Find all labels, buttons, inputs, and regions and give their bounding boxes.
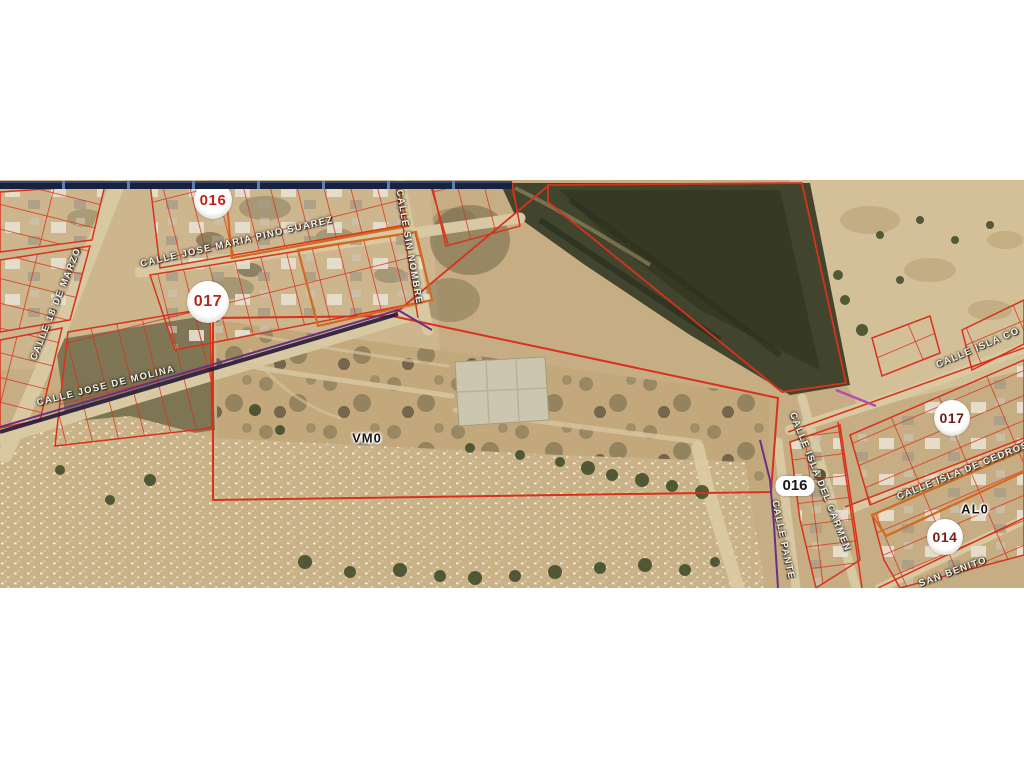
zone-marker-017-right: 017 [934,400,970,436]
header-band [0,181,512,189]
zone-marker-al0: AL0 [961,502,989,517]
map-viewport[interactable]: CALLE 18 DE MARZO CALLE JOSE MARIA PINO … [0,180,1024,588]
map-linework [0,180,1024,588]
sports-courts [455,357,549,426]
zone-marker-vm0: VM0 [352,431,382,446]
zone-marker-017-left: 017 [187,281,229,323]
zone-marker-014: 014 [927,519,963,555]
zone-marker-016-right: 016 [775,476,814,496]
